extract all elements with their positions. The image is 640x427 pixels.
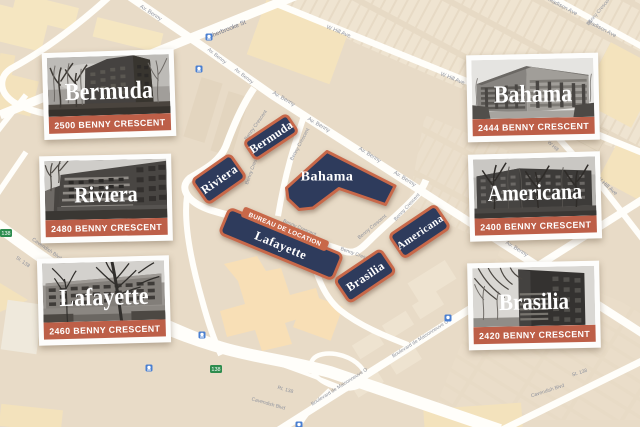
svg-text:Bahama: Bahama bbox=[301, 170, 354, 185]
svg-text:138: 138 bbox=[1, 231, 10, 237]
svg-text:138: 138 bbox=[211, 367, 220, 373]
